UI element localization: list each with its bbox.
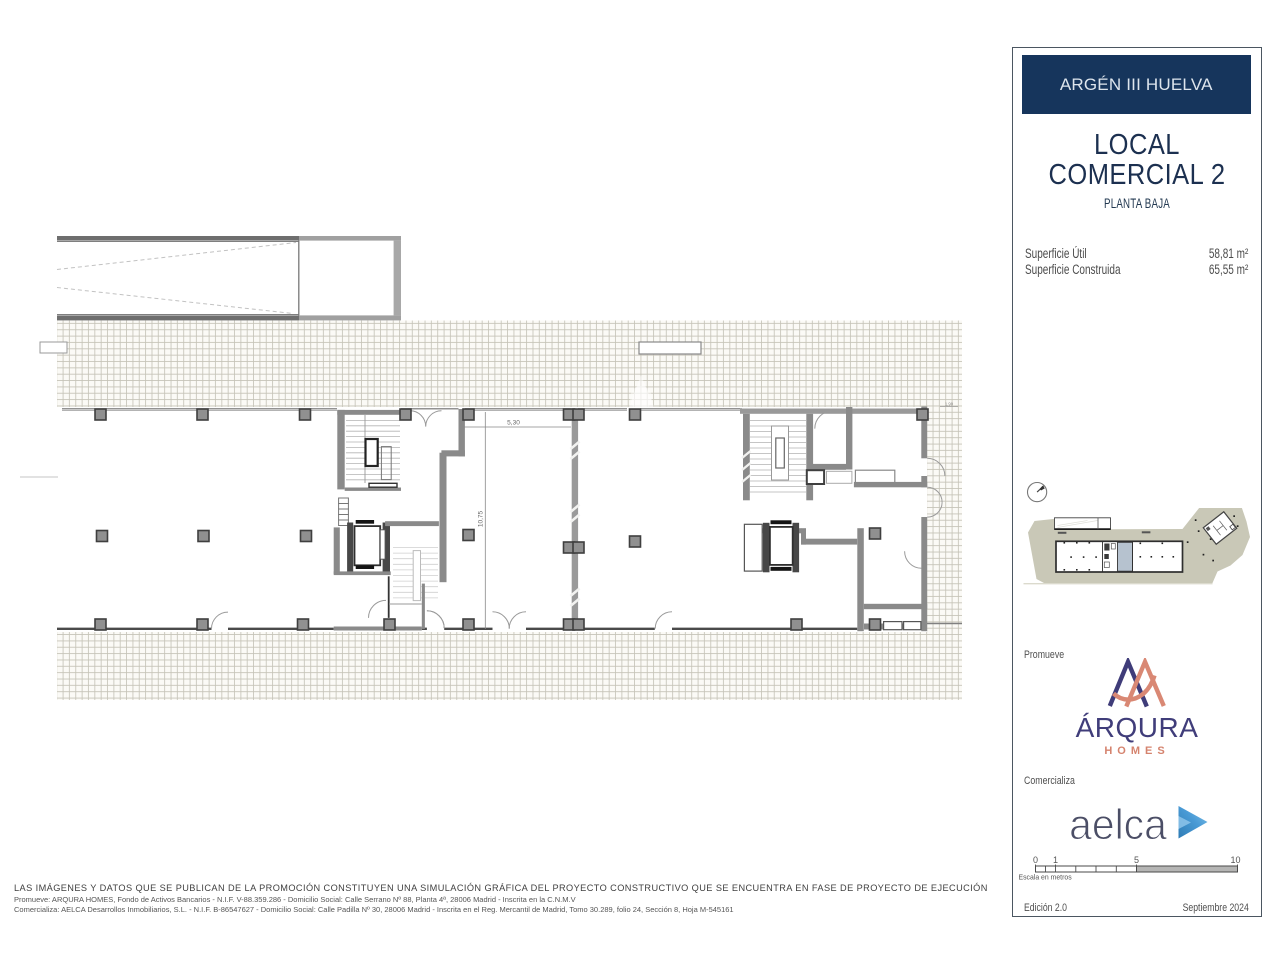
svg-text:10,75: 10,75 — [478, 510, 485, 527]
svg-text:1: 1 — [1053, 855, 1058, 865]
svg-text:5: 5 — [1134, 855, 1139, 865]
svg-text:0: 0 — [1033, 855, 1038, 865]
svg-text:Escala en metros: Escala en metros — [1019, 872, 1073, 881]
svg-text:5,30: 5,30 — [507, 420, 520, 427]
svg-text:1,90: 1,90 — [945, 402, 954, 407]
svg-text:10: 10 — [1230, 855, 1240, 865]
